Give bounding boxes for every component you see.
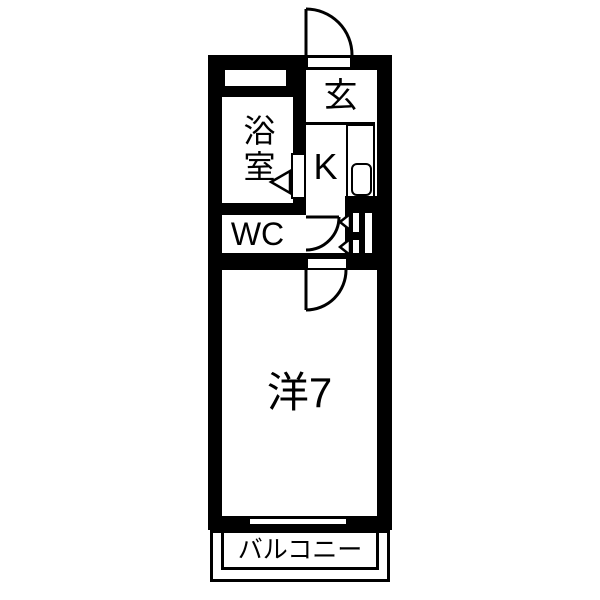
main-room-door-threshold bbox=[306, 257, 348, 270]
entrance-door-threshold bbox=[306, 56, 352, 69]
bathroom-label: 浴室 bbox=[222, 97, 293, 203]
balcony-window bbox=[248, 517, 348, 526]
western-room-label: 洋7 bbox=[222, 270, 377, 516]
storage-compartment-top bbox=[351, 211, 361, 234]
wall-left bbox=[208, 55, 222, 530]
wall-right bbox=[377, 55, 392, 530]
wc-door-arc-icon bbox=[306, 217, 339, 250]
genkan-label: 玄 bbox=[306, 70, 375, 122]
balcony-label: バルコニー bbox=[221, 530, 379, 570]
wc-label: WC bbox=[222, 215, 293, 252]
floor-plan: 玄 浴室 K WC 洋7 バルコニー bbox=[0, 0, 600, 600]
bathroom-door-panel bbox=[291, 153, 306, 199]
bathroom-window-bar bbox=[225, 70, 286, 86]
wall-top bbox=[208, 55, 391, 70]
storage-compartment-tall bbox=[363, 211, 374, 255]
kitchen-sink-icon bbox=[351, 163, 372, 196]
storage-compartment-bottom bbox=[351, 238, 361, 255]
kitchen-label: K bbox=[306, 125, 345, 209]
entrance-door-arc-icon bbox=[306, 9, 352, 55]
wc-door-threshold bbox=[293, 215, 306, 253]
wall-bathroom-wc bbox=[222, 203, 293, 215]
